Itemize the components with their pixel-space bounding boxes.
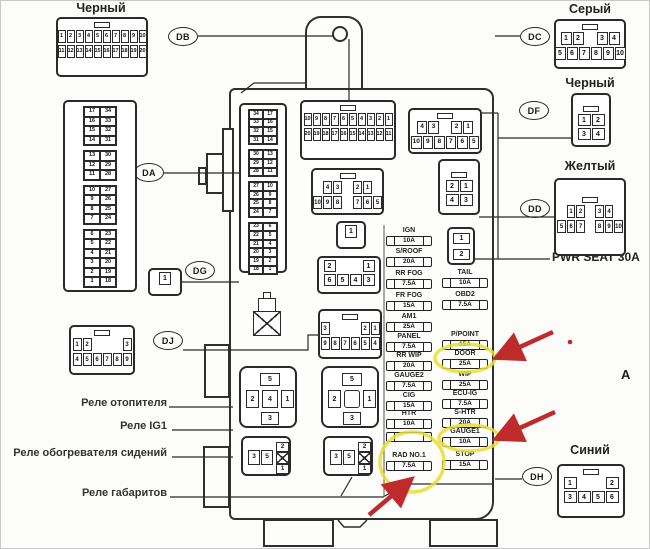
ref-oval-db: DB	[168, 27, 198, 46]
relay-socket-seat-heater-crossed-box-icon	[276, 452, 289, 464]
connector-latch	[342, 314, 358, 320]
pin-8: 8	[263, 199, 277, 208]
pin-7: 7	[353, 196, 362, 209]
fuse-end-cell	[387, 258, 395, 266]
pin-20: 20	[249, 248, 263, 257]
pin-22: 22	[100, 239, 116, 249]
fuse-fr-fog: 15A	[386, 301, 432, 311]
pin-gap	[585, 32, 596, 45]
fuse-label-tail: TAIL	[442, 269, 488, 276]
pin-5: 5	[337, 274, 349, 286]
ref-oval-da: DA	[134, 163, 164, 182]
pin-5: 5	[94, 30, 102, 43]
pin-1: 1	[159, 272, 171, 285]
fuse-rating: 15A	[395, 402, 423, 410]
pin-row: 12	[578, 114, 605, 126]
fuse-end-cell	[423, 323, 431, 331]
fuse-end-cell	[479, 301, 487, 309]
pin-13: 13	[84, 151, 100, 161]
pin-2: 2	[353, 181, 362, 194]
pin-gap	[343, 196, 352, 209]
pin-7: 7	[331, 113, 339, 126]
pin-5: 5	[555, 47, 566, 60]
fuse-rating: 25A	[395, 323, 423, 331]
fuse-end-cell	[387, 323, 395, 331]
arrow-to-gauge1-fuse	[500, 412, 555, 437]
pin-6: 6	[263, 223, 277, 232]
pin-row: 987654	[321, 337, 380, 350]
pin-10: 10	[615, 47, 626, 60]
pin-8: 8	[591, 47, 602, 60]
pin-9: 9	[263, 191, 277, 200]
label-relay-clearance-lights: Реле габаритов	[7, 488, 167, 499]
pin-20: 20	[100, 258, 116, 268]
pin-4: 4	[578, 491, 591, 503]
fuse-end-cell	[479, 360, 487, 368]
pin-row: 1	[159, 272, 171, 285]
pin-7: 7	[579, 47, 590, 60]
pin-12: 12	[84, 161, 100, 171]
relay-socket-seat-heater: 3521	[241, 436, 291, 476]
label-relay-heater: Реле отопителя	[7, 398, 167, 409]
relay-socket-clearance-pin-3: 3	[330, 450, 342, 465]
pin-row: 203	[249, 248, 277, 257]
pin-10: 10	[263, 182, 277, 191]
pin-21: 21	[100, 249, 116, 259]
pin-14: 14	[263, 136, 277, 145]
fuse-rating: 25A	[451, 381, 479, 389]
pin-30: 30	[249, 150, 263, 159]
pin-row: 12345678910	[58, 30, 147, 43]
pwr-seat-slot-2: 2	[453, 249, 470, 260]
fuse-end-cell	[423, 237, 431, 245]
pin-row: 5678910	[555, 47, 626, 60]
pin-5: 5	[83, 353, 92, 366]
title-black-top-left: Черный	[59, 2, 143, 15]
pin-28: 28	[100, 170, 116, 180]
pin-2: 2	[67, 30, 75, 43]
pin-19: 19	[313, 128, 321, 141]
fuse-end-cell	[423, 343, 431, 351]
connector-dh_out: 123456	[557, 464, 625, 518]
fuse-gauge2: 7.5A	[386, 381, 432, 391]
pin-7: 7	[103, 353, 112, 366]
connector-dj_in: 321987654	[318, 309, 382, 359]
pin-2: 2	[263, 257, 277, 266]
bottom-notch	[338, 520, 367, 527]
pin-row: 1532	[84, 126, 116, 136]
pin-gap	[592, 477, 605, 489]
pin-4: 4	[85, 30, 93, 43]
fuse-gauge1: 10A	[442, 437, 488, 447]
relay-socket-heater-pin-center: 4	[262, 390, 278, 408]
pin-23: 23	[249, 223, 263, 232]
pin-28: 28	[249, 168, 263, 177]
fuse-empty	[386, 432, 432, 442]
ref-oval-dc: DC	[520, 27, 550, 46]
pin-15: 15	[84, 126, 100, 136]
pin-11: 11	[263, 168, 277, 177]
pin-gap	[103, 338, 112, 351]
pin-24: 24	[100, 214, 116, 224]
pin-row: 1431	[84, 136, 116, 146]
pin-19: 19	[100, 268, 116, 278]
fuse-htr: 10A	[386, 419, 432, 429]
pin-20: 20	[304, 128, 312, 141]
label-relay-ig1: Реле IG1	[7, 421, 167, 432]
pin-26: 26	[100, 195, 116, 205]
pin-19: 19	[130, 45, 138, 58]
pin-13: 13	[76, 45, 84, 58]
pin-row: 1128	[84, 170, 116, 180]
fuse-rating: 7.5A	[395, 343, 423, 351]
pin-13: 13	[263, 150, 277, 159]
fuse-end-cell	[443, 381, 451, 389]
ref-oval-dh: DH	[522, 467, 552, 486]
mounting-hole	[332, 26, 348, 42]
pin-row: 456789	[73, 353, 132, 366]
pin-9: 9	[130, 30, 138, 43]
left-bracket-strip	[222, 128, 234, 212]
pin-row: 2811	[249, 168, 277, 177]
pin-gap	[578, 477, 591, 489]
left-flange-upper	[204, 344, 230, 398]
pin-row: 1229	[84, 161, 116, 171]
ref-oval-df: DF	[519, 101, 549, 120]
pin-17: 17	[112, 45, 120, 58]
fuse-end-cell	[443, 301, 451, 309]
connector-latch	[451, 172, 467, 178]
pin-row: 236	[249, 223, 277, 232]
pin-8: 8	[84, 205, 100, 215]
pin-3: 3	[460, 194, 473, 206]
pin-3: 3	[84, 258, 100, 268]
pin-30: 30	[100, 151, 116, 161]
pin-row: 247	[249, 208, 277, 217]
pin-row: 219	[84, 268, 116, 278]
pin-4: 4	[605, 205, 614, 218]
pin-row: 181	[249, 266, 277, 275]
pin-6: 6	[324, 274, 336, 286]
pin-row: 1098765	[313, 196, 382, 209]
pin-gap	[93, 338, 102, 351]
pin-group: 2710269258247	[248, 181, 278, 217]
pin-1: 1	[561, 32, 572, 45]
pin-row: 2912	[249, 159, 277, 168]
pin-row: 1633	[84, 117, 116, 127]
pin-3: 3	[367, 113, 375, 126]
pin-21: 21	[249, 240, 263, 249]
pin-group: 1734163315321431	[83, 106, 117, 146]
fuse-label-fr-fog: FR FOG	[386, 292, 432, 299]
fuse-label-gauge1: GAUGE1	[442, 428, 488, 435]
pin-17: 17	[331, 128, 339, 141]
fuse-end-cell	[387, 420, 395, 428]
fuse-label-rr-fog: RR FOG	[386, 270, 432, 277]
connector-dd_in: 43211098765	[311, 168, 384, 215]
pin-row: 421	[84, 249, 116, 259]
pin-8: 8	[121, 30, 129, 43]
fuse-am1: 25A	[386, 322, 432, 332]
pin-33: 33	[100, 117, 116, 127]
pin-group: 133012291128	[83, 150, 117, 181]
pin-row: 320	[84, 258, 116, 268]
title-gray: Серый	[548, 3, 632, 16]
connector-latch	[583, 469, 599, 475]
pin-6: 6	[567, 220, 576, 233]
pin-17: 17	[263, 110, 277, 119]
fuse-door: 25A	[442, 359, 488, 369]
pin-15: 15	[263, 127, 277, 136]
pin-33: 33	[249, 119, 263, 128]
pin-row: 1234	[567, 205, 614, 218]
connector-dc_in: 43211098765	[408, 108, 482, 154]
pin-9: 9	[603, 47, 614, 60]
pin-row: 20191817161514131211	[304, 128, 393, 141]
connector-latch	[340, 105, 356, 111]
fuse-rating: 7.5A	[395, 280, 423, 288]
fuse-label-obd2: OBD2	[442, 291, 488, 298]
pin-25: 25	[100, 205, 116, 215]
pin-1: 1	[345, 225, 357, 238]
connector-dc_out: 12345678910	[554, 19, 626, 69]
pin-row: 118	[84, 277, 116, 287]
pin-group: 301329122811	[248, 149, 278, 177]
pin-8: 8	[331, 337, 340, 350]
pin-29: 29	[249, 159, 263, 168]
fuse-rr-wip: 20A	[386, 361, 432, 371]
pin-10: 10	[304, 113, 312, 126]
pin-1: 1	[58, 30, 66, 43]
fuse-end-cell	[479, 400, 487, 408]
pin-32: 32	[249, 127, 263, 136]
pin-1: 1	[463, 121, 474, 134]
pin-1: 1	[84, 277, 100, 287]
pin-22: 22	[249, 231, 263, 240]
pin-14: 14	[85, 45, 93, 58]
pin-3: 3	[597, 32, 608, 45]
pin-8: 8	[333, 196, 342, 209]
pin-row: 214	[249, 240, 277, 249]
pin-3: 3	[333, 181, 342, 194]
connector-da_in: 3417331632153114301329122811271026925824…	[239, 103, 287, 273]
pin-row: 926	[84, 195, 116, 205]
pin-4: 4	[371, 337, 380, 350]
relay-socket-clearance: 3521	[323, 436, 373, 476]
pin-6: 6	[567, 47, 578, 60]
pin-1: 1	[567, 205, 576, 218]
fuse-s-htr: 20A	[442, 418, 488, 428]
fuse-label-s-htr: S-HTR	[442, 409, 488, 416]
pin-34: 34	[100, 107, 116, 117]
pin-4: 4	[263, 240, 277, 249]
connector-dg_in: 1	[336, 221, 366, 249]
pin-row: 258	[249, 199, 277, 208]
pin-31: 31	[249, 136, 263, 145]
pin-16: 16	[84, 117, 100, 127]
connector-latch	[582, 24, 598, 30]
relay-socket-clearance-pin-5: 5	[343, 450, 355, 465]
pin-11: 11	[58, 45, 66, 58]
title-black-right: Черный	[548, 77, 632, 90]
fuse-end-cell	[443, 419, 451, 427]
pin-2: 2	[376, 113, 384, 126]
pin-3: 3	[595, 205, 604, 218]
pin-4: 4	[592, 128, 605, 140]
diode-neck	[258, 298, 276, 312]
pin-2: 2	[592, 114, 605, 126]
pin-9: 9	[123, 353, 132, 366]
fuse-end-cell	[443, 279, 451, 287]
fuse-end-cell	[479, 381, 487, 389]
relay-socket-heater-pin-bottom: 3	[261, 412, 279, 425]
fuse-end-cell	[479, 461, 487, 469]
pin-row: 1027	[84, 186, 116, 196]
pin-27: 27	[100, 186, 116, 196]
fuse-end-cell	[423, 402, 431, 410]
fuse-end-cell	[479, 341, 487, 349]
pin-1: 1	[363, 181, 372, 194]
relay-socket-ig1-pin-right: 1	[363, 390, 376, 408]
relay-socket-clearance-crossed-box-icon	[358, 452, 371, 464]
fuse-s-roof: 20A	[386, 257, 432, 267]
fuse-label-am1: AM1	[386, 313, 432, 320]
fuse-end-cell	[387, 343, 395, 351]
fuse-end-cell	[387, 302, 395, 310]
fuse-rating: 10A	[395, 237, 423, 245]
pin-2: 2	[446, 180, 459, 192]
pin-26: 26	[249, 191, 263, 200]
fuse-rating: 20A	[395, 258, 423, 266]
pin-13: 13	[367, 128, 375, 141]
connector-latch	[94, 22, 110, 28]
relay-socket-ig1-pin-left: 2	[328, 390, 341, 408]
pin-row: 522	[84, 239, 116, 249]
pin-row: 11121314151617181920	[58, 45, 147, 58]
fuse-rating: 25A	[451, 360, 479, 368]
title-yellow: Желтый	[548, 160, 632, 173]
pin-row: 3456	[564, 491, 619, 503]
relay-socket-heater-pin-top: 5	[260, 373, 280, 386]
pin-15: 15	[94, 45, 102, 58]
pin-11: 11	[385, 128, 393, 141]
fuse-rating: 10A	[395, 420, 423, 428]
pin-1: 1	[73, 338, 82, 351]
pin-9: 9	[323, 196, 332, 209]
pwr-seat-slot-1: 1	[453, 233, 470, 244]
fuse-p-point: 15A	[442, 340, 488, 350]
pin-9: 9	[321, 337, 330, 350]
fuse-box-diagram: Черный Серый Черный Желтый Синий DB DA D…	[0, 0, 650, 549]
pin-7: 7	[112, 30, 120, 43]
pin-1: 1	[460, 180, 473, 192]
fuse-end-cell	[387, 280, 395, 288]
pin-row: 3114	[249, 136, 277, 145]
pin-row: 1098765	[411, 136, 479, 149]
pin-row: 192	[249, 257, 277, 266]
pin-12: 12	[263, 159, 277, 168]
pin-row: 724	[84, 214, 116, 224]
pin-groups: 3417331632153114301329122811271026925824…	[248, 109, 278, 279]
pin-gap	[113, 338, 122, 351]
pin-6: 6	[363, 196, 372, 209]
relay-socket-heater-pin-right: 1	[281, 390, 294, 408]
pin-row: 12	[564, 477, 619, 489]
fuse-end-cell	[387, 462, 395, 470]
fuse-end-cell	[423, 382, 431, 390]
pin-1: 1	[385, 113, 393, 126]
pin-25: 25	[249, 199, 263, 208]
fuse-ecu-ig: 7.5A	[442, 399, 488, 409]
fuse-label-htr: HTR	[386, 410, 432, 417]
fuse-wip: 25A	[442, 380, 488, 390]
pin-9: 9	[84, 195, 100, 205]
fuse-label-wip: WIP	[442, 371, 488, 378]
pin-3: 3	[263, 248, 277, 257]
fuse-end-cell	[423, 280, 431, 288]
pin-9: 9	[423, 136, 434, 149]
fuse-label-rad-no-1: RAD NO.1	[386, 452, 432, 459]
relay-socket-ig1: 5213	[321, 366, 379, 428]
pin-16: 16	[103, 45, 111, 58]
relay-socket-seat-heater-pin-2: 2	[276, 442, 289, 452]
fuse-rating	[395, 433, 423, 441]
fuse-rating: 20A	[395, 362, 423, 370]
fuse-rating: 15A	[451, 341, 479, 349]
left-bracket-nub	[198, 167, 207, 185]
fuse-rating: 20A	[451, 419, 479, 427]
fuse-end-cell	[423, 420, 431, 428]
pin-2: 2	[84, 268, 100, 278]
fuse-end-cell	[387, 433, 395, 441]
fuse-label-p-point: P/POINT	[442, 331, 488, 338]
fuse-stop: 15A	[442, 460, 488, 470]
pin-16: 16	[263, 119, 277, 128]
pin-3: 3	[428, 121, 439, 134]
pin-3: 3	[564, 491, 577, 503]
relay-socket-ig1-pin-top: 5	[342, 373, 362, 386]
pin-10: 10	[614, 220, 623, 233]
pin-2: 2	[361, 322, 370, 335]
fuse-rating: 15A	[451, 461, 479, 469]
pin-29: 29	[100, 161, 116, 171]
pin-2: 2	[576, 205, 585, 218]
fuse-label-rr-wip: RR WIP	[386, 352, 432, 359]
pin-18: 18	[322, 128, 330, 141]
pin-row: 623	[84, 230, 116, 240]
pin-17: 17	[84, 107, 100, 117]
pin-2: 2	[324, 260, 336, 272]
fuse-label-ecu-ig: ECU-IG	[442, 390, 488, 397]
pin-row: 4321	[417, 121, 474, 134]
red-speck	[568, 340, 573, 345]
fuse-ign: 10A	[386, 236, 432, 246]
pin-3: 3	[321, 322, 330, 335]
connector-dh_in: 216543	[317, 256, 381, 294]
box-foot-left	[263, 519, 334, 547]
pin-12: 12	[376, 128, 384, 141]
pin-5: 5	[373, 196, 382, 209]
fuse-end-cell	[443, 400, 451, 408]
pin-1: 1	[371, 322, 380, 335]
pin-10: 10	[139, 30, 147, 43]
pin-6: 6	[351, 337, 360, 350]
fuse-rating: 7.5A	[395, 462, 423, 470]
pin-2: 2	[83, 338, 92, 351]
pin-group: 1027926825724	[83, 185, 117, 225]
fuse-end-cell	[479, 419, 487, 427]
pin-gap	[331, 322, 340, 335]
